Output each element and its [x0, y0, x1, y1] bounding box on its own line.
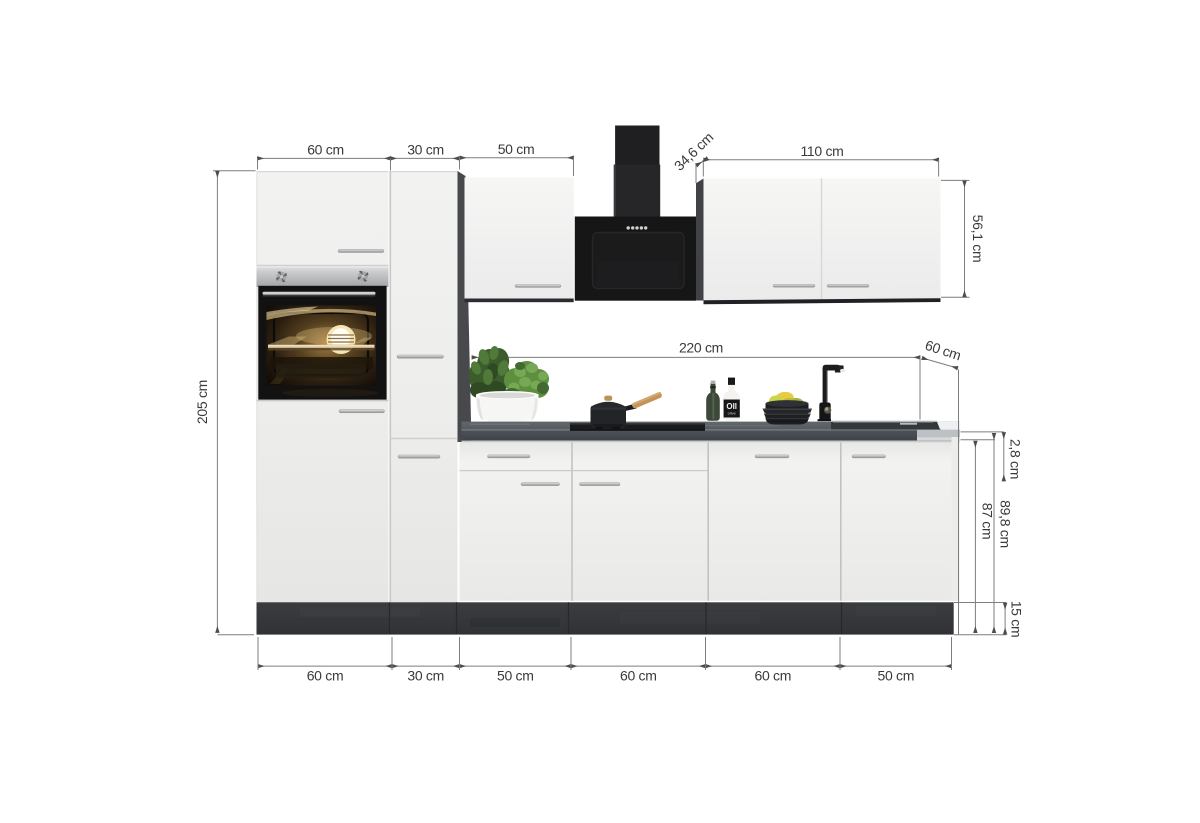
svg-text:89,8 cm: 89,8 cm — [998, 500, 1014, 548]
svg-text:60 cm: 60 cm — [620, 668, 657, 684]
svg-text:2,8 cm: 2,8 cm — [1008, 439, 1024, 479]
svg-text:87 cm: 87 cm — [980, 503, 996, 540]
svg-text:220 cm: 220 cm — [679, 339, 723, 355]
svg-text:56,1 cm: 56,1 cm — [970, 215, 986, 263]
svg-text:15 cm: 15 cm — [1009, 601, 1025, 638]
svg-text:110 cm: 110 cm — [800, 143, 843, 159]
svg-text:50 cm: 50 cm — [497, 668, 534, 684]
svg-text:30 cm: 30 cm — [407, 142, 444, 158]
svg-text:60 cm: 60 cm — [307, 668, 344, 684]
svg-text:olive: olive — [728, 411, 737, 416]
svg-text:50 cm: 50 cm — [498, 141, 535, 157]
svg-text:60 cm: 60 cm — [754, 668, 791, 684]
svg-text:30 cm: 30 cm — [407, 668, 444, 684]
svg-text:60 cm: 60 cm — [307, 142, 344, 158]
svg-text:205 cm: 205 cm — [194, 380, 210, 424]
svg-text:50 cm: 50 cm — [877, 668, 914, 684]
